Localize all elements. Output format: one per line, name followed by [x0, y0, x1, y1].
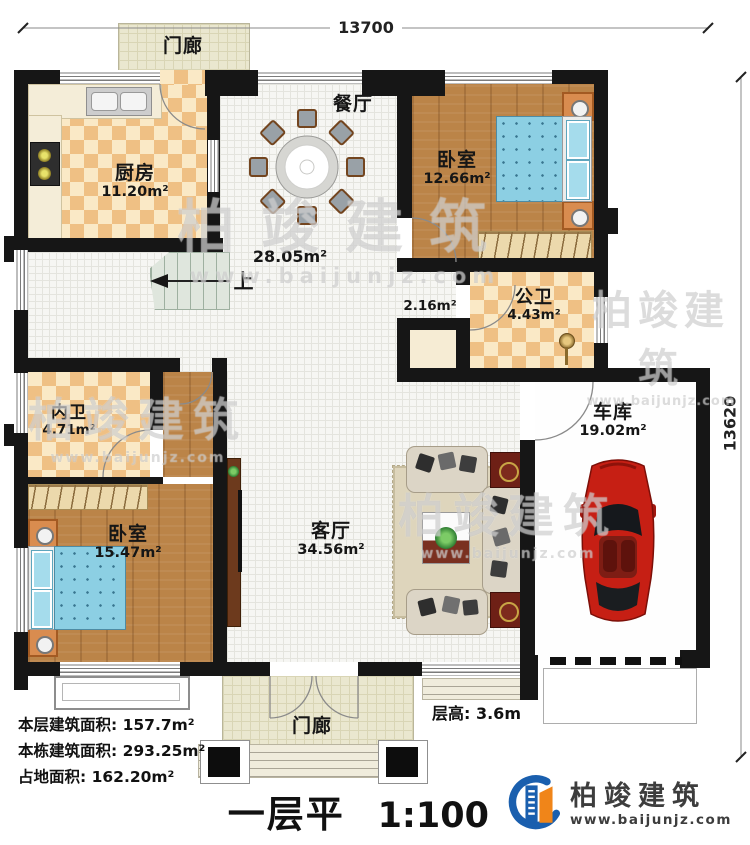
wall-pier — [608, 208, 618, 234]
dimension-top: 13700 — [330, 18, 402, 37]
stat-total-area: 本栋建筑面积: 293.25m² — [18, 738, 205, 764]
wall — [358, 662, 422, 676]
wall — [180, 662, 270, 676]
tv-icon — [238, 490, 242, 572]
stairs-up-label: 上 — [230, 270, 258, 292]
nightstand-icon — [562, 201, 594, 230]
bedroom1-wardrobe — [478, 231, 592, 259]
window — [14, 250, 28, 310]
room-label-porch-bottom: 门廊 — [272, 716, 352, 737]
porch-column-core — [386, 747, 418, 777]
window — [445, 70, 552, 84]
window — [258, 70, 362, 84]
wall — [14, 433, 28, 548]
door-opening — [397, 218, 412, 258]
wall — [14, 358, 180, 372]
wall-pier — [4, 236, 14, 262]
room-label-garage: 车库 19.02m² — [578, 402, 648, 440]
brand-logo-icon — [504, 774, 560, 836]
wall — [213, 358, 227, 662]
brand-text: 柏竣建筑 www.baijunjz.com — [570, 782, 732, 828]
wall — [456, 272, 470, 285]
sofa-icon — [406, 446, 488, 493]
room-label-living: 客厅 34.56m² — [293, 521, 369, 559]
kitchen-door-threshold — [160, 70, 205, 85]
coffee-table-icon — [422, 512, 470, 564]
nightstand-icon — [28, 628, 58, 657]
wall — [14, 477, 163, 484]
wall — [397, 70, 412, 218]
page-title: 一层平面图 — [209, 784, 364, 845]
wall — [150, 372, 163, 430]
window — [14, 548, 28, 632]
plant-icon — [228, 466, 239, 477]
pass-through — [208, 140, 219, 192]
bedroom2-wardrobe — [28, 484, 148, 510]
side-table-icon — [490, 592, 524, 628]
nightstand-icon — [28, 519, 58, 548]
sofa-icon — [406, 589, 488, 635]
kitchen-sink-icon — [86, 87, 152, 116]
wall — [520, 440, 535, 662]
wall — [14, 662, 60, 676]
scale-label: 1:100 — [378, 796, 489, 836]
wash-nook-floor — [410, 330, 456, 368]
bed-headboard — [28, 546, 56, 630]
garage-apron — [543, 668, 697, 724]
dining-table-icon — [245, 105, 369, 229]
wall — [397, 368, 710, 382]
window — [422, 662, 520, 676]
wall — [696, 368, 710, 668]
room-label-bedroom2: 卧室 15.47m² — [88, 524, 168, 562]
bed-headboard — [562, 116, 592, 202]
door-opening — [270, 662, 358, 676]
room-label-dining-area: 28.05m² — [235, 248, 345, 266]
shower-head-icon — [558, 333, 576, 367]
window — [60, 70, 160, 84]
brand-name: 柏竣建筑 — [570, 782, 732, 812]
side-table-icon — [490, 452, 524, 488]
wall — [456, 330, 470, 368]
wall — [397, 318, 410, 382]
wall — [14, 238, 223, 252]
brand-block: 柏竣建筑 www.baijunjz.com — [504, 774, 732, 836]
window — [14, 373, 28, 433]
room-label-kitchen: 厨房 11.20m² — [80, 163, 190, 201]
wall — [680, 650, 710, 668]
room-label-inner-bath: 内卫 4.71m² — [33, 404, 105, 438]
stairs — [150, 252, 230, 310]
area-stats: 本层建筑面积: 157.7m² 本栋建筑面积: 293.25m² 占地面积: 1… — [18, 712, 205, 790]
side-steps — [422, 678, 522, 700]
wall — [14, 632, 28, 690]
window — [594, 297, 608, 343]
car-icon — [580, 452, 656, 628]
brand-url: www.baijunjz.com — [570, 812, 732, 828]
wall — [14, 70, 28, 250]
bedroom2-entry-floor — [163, 372, 213, 477]
room-label-bedroom1: 卧室 12.66m² — [404, 150, 510, 188]
wall — [397, 258, 608, 272]
dimension-right: 13620 — [721, 393, 740, 455]
porch-column-core — [208, 747, 240, 777]
room-label-dining: 餐厅 — [298, 94, 408, 115]
floor-height-label: 层高: 3.6m — [432, 700, 521, 724]
window — [60, 662, 180, 676]
bay-window — [54, 676, 190, 710]
room-label-porch-top: 门廊 — [118, 36, 248, 57]
room-label-public-bath: 公卫 4.43m² — [498, 288, 570, 323]
stat-floor-area: 本层建筑面积: 157.7m² — [18, 712, 205, 738]
title-block: 一层平面图 1:100 — [203, 784, 495, 845]
room-label-nook: 2.16m² — [398, 299, 462, 314]
wall-pier — [4, 424, 14, 446]
floor-plan-canvas: 13700 13620 — [0, 0, 750, 845]
stat-land-area: 占地面积: 162.20m² — [18, 764, 205, 790]
stove-icon — [30, 142, 60, 186]
